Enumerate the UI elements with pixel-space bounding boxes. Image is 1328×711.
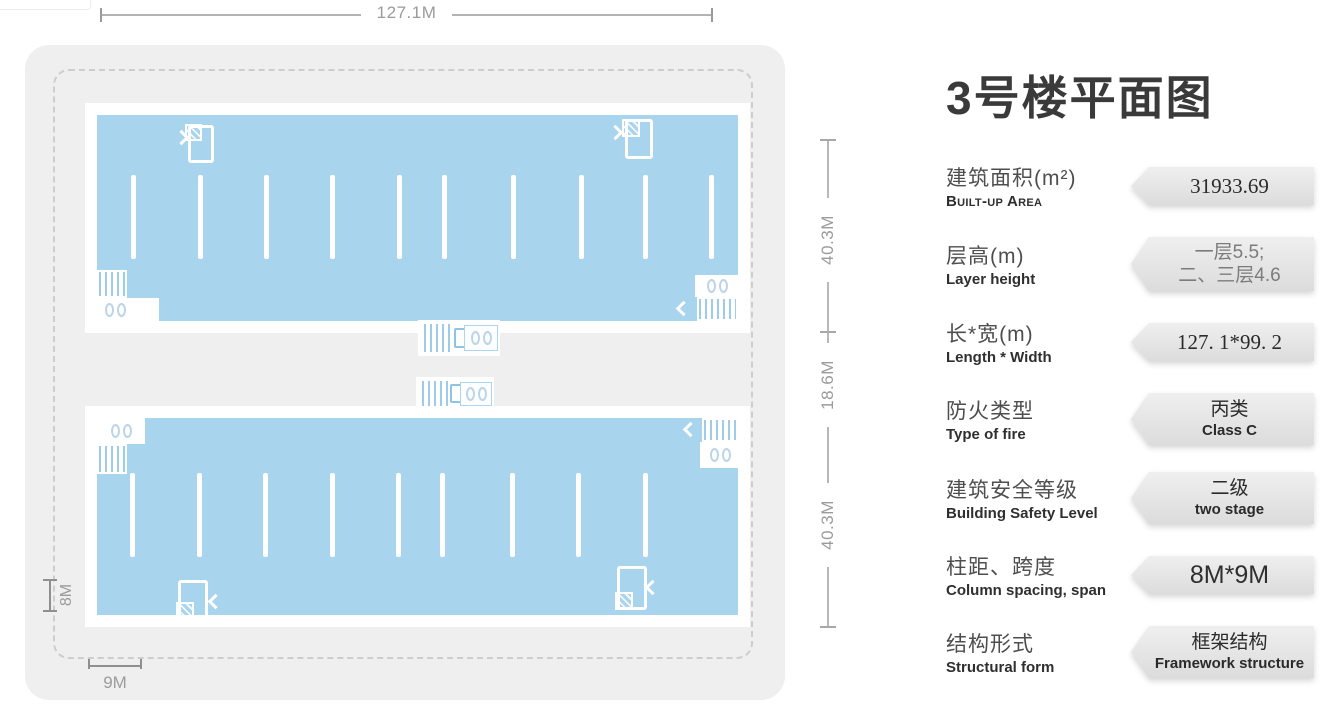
column-grid-line (330, 175, 335, 259)
column-grid-line (396, 473, 401, 557)
upper-building (97, 115, 738, 321)
dimension-tick (140, 659, 142, 669)
stairs-icon (99, 446, 125, 472)
spec-label-en: Type of fire (946, 426, 1131, 443)
right-dimension-label-1: 18.6M (817, 343, 839, 427)
page-title: 3号楼平面图 (946, 62, 1314, 128)
spec-label-en: Layer height (946, 271, 1131, 288)
ribbon-arrow-shape: 8M*9M (1131, 556, 1314, 594)
people-icon (707, 279, 728, 293)
spec-label-structure-form: 结构形式Structural form (946, 628, 1131, 676)
stair-lobby (97, 298, 159, 321)
stairs-icon (422, 381, 448, 407)
column-grid-line (330, 473, 335, 557)
door-icon (188, 125, 214, 163)
chevron-left-icon (683, 422, 699, 438)
dimension-tick (711, 8, 713, 22)
door-hatch-icon (622, 119, 640, 137)
stairs-icon (704, 420, 736, 440)
upper-building-frame (85, 103, 750, 333)
spec-label-zh: 建筑安全等级 (946, 474, 1131, 504)
column-grid-line (131, 175, 136, 259)
spec-value-line: 丙类 (1210, 398, 1248, 421)
stair-lobby (700, 442, 738, 468)
spec-row-layer-height: 层高(m)Layer height一层5.5;二、三层4.6 (946, 237, 1314, 291)
column-grid-line (397, 175, 402, 259)
spec-table: 建筑面积(m²)Built-up Area31933.69层高(m)Layer … (946, 162, 1314, 678)
lower-building (97, 418, 738, 615)
dimension-tick (820, 139, 836, 141)
chevron-left-icon (645, 580, 661, 596)
spec-label-zh: 柱距、跨度 (946, 551, 1131, 581)
top-width-dimension: 127.1M (100, 6, 713, 23)
dimension-tick (88, 659, 90, 669)
column-grid-line (264, 175, 269, 259)
people-icon (105, 303, 126, 317)
column-grid-line (511, 175, 516, 259)
spec-value-banner-length-width: 127. 1*99. 2 (1131, 323, 1314, 361)
spec-label-en: Structural form (946, 659, 1131, 676)
chevron-right-icon (608, 125, 624, 141)
spec-label-zh: 长*宽(m) (946, 318, 1131, 348)
spec-value-line: 二级 (1210, 477, 1248, 500)
chevron-right-icon (129, 273, 145, 289)
spec-label-safety-level: 建筑安全等级Building Safety Level (946, 474, 1131, 522)
column-grid-line (198, 175, 203, 259)
dimension-line (452, 14, 711, 16)
screen-edge-artifact (0, 0, 91, 10)
column-grid-line (197, 473, 202, 557)
restroom-box (460, 382, 492, 406)
central-core-upper (418, 320, 500, 356)
ribbon-arrow-shape: 31933.69 (1131, 167, 1314, 205)
column-grid-line (130, 473, 135, 557)
spec-value-line: 一层5.5; (1195, 241, 1265, 264)
column-grid-line (579, 175, 584, 259)
ribbon-arrow-shape: 丙类Class C (1131, 393, 1314, 445)
spec-label-en: Built-up Area (946, 193, 1131, 210)
spec-value-banner-layer-height: 一层5.5;二、三层4.6 (1131, 237, 1314, 291)
stairs-icon (699, 299, 736, 319)
restroom-box (464, 325, 498, 351)
spec-value-line: two stage (1195, 500, 1264, 520)
spec-row-built-up-area: 建筑面积(m²)Built-up Area31933.69 (946, 162, 1314, 210)
spec-label-en: Length * Width (946, 349, 1131, 366)
stair-lobby (695, 275, 738, 297)
spec-value-banner-built-up-area: 31933.69 (1131, 167, 1314, 205)
spec-value-banner-structure-form: 框架结构Framework structure (1131, 626, 1314, 678)
ribbon-arrow-shape: 框架结构Framework structure (1131, 626, 1314, 678)
ribbon-arrow-shape: 二级two stage (1131, 472, 1314, 524)
spec-label-layer-height: 层高(m)Layer height (946, 240, 1131, 288)
door-hatch-icon (185, 124, 202, 141)
stairs-icon (99, 272, 125, 296)
spec-label-fire-type: 防火类型Type of fire (946, 395, 1131, 443)
bottom-span-dimension-label: 9M (88, 673, 142, 693)
spec-row-column-span: 柱距、跨度Column spacing, span8M*9M (946, 551, 1314, 599)
spec-label-column-span: 柱距、跨度Column spacing, span (946, 551, 1131, 599)
ribbon-arrow-shape: 一层5.5;二、三层4.6 (1131, 237, 1314, 291)
spec-value-banner-column-span: 8M*9M (1131, 556, 1314, 594)
people-icon (111, 424, 132, 438)
floor-plan-infographic: 127.1M (0, 0, 1328, 711)
spec-value-banner-safety-level: 二级two stage (1131, 472, 1314, 524)
people-icon (471, 331, 492, 345)
column-grid-line (440, 473, 445, 557)
spec-value-line: 框架结构 (1191, 631, 1267, 654)
spec-value-line: 127. 1*99. 2 (1177, 331, 1282, 354)
spec-label-zh: 层高(m) (946, 240, 1131, 270)
dimension-line (88, 665, 142, 667)
chevron-right-icon (129, 450, 145, 466)
spec-row-fire-type: 防火类型Type of fire丙类Class C (946, 393, 1314, 445)
lower-building-frame (85, 406, 750, 627)
stair-lobby (97, 418, 145, 444)
spec-value-line: 31933.69 (1190, 175, 1269, 198)
door-icon (178, 580, 208, 620)
spec-label-en: Building Safety Level (946, 505, 1131, 522)
door-icon (625, 119, 653, 159)
people-icon (466, 387, 487, 401)
spec-label-length-width: 长*宽(m)Length * Width (946, 318, 1131, 366)
spec-label-zh: 结构形式 (946, 628, 1131, 658)
spec-label-zh: 防火类型 (946, 395, 1131, 425)
stair-core (697, 297, 738, 321)
door-icon (617, 566, 647, 610)
dimension-tick (43, 610, 57, 612)
top-width-dimension-label: 127.1M (361, 3, 453, 23)
spec-label-en: Column spacing, span (946, 582, 1131, 599)
column-grid-line (263, 473, 268, 557)
dimension-tick (820, 626, 836, 628)
dimension-tick (820, 331, 836, 333)
stair-core (97, 270, 127, 298)
column-grid-line (643, 473, 648, 557)
spec-value-line: 8M*9M (1190, 564, 1269, 587)
people-icon (710, 448, 731, 462)
info-panel: 3号楼平面图 建筑面积(m²)Built-up Area31933.69层高(m… (946, 62, 1314, 678)
stairs-icon (424, 324, 452, 352)
column-grid-line (510, 473, 515, 557)
spec-row-safety-level: 建筑安全等级Building Safety Level二级two stage (946, 472, 1314, 524)
spec-label-zh: 建筑面积(m²) (946, 162, 1131, 192)
right-dimension-label-0: 40.3M (817, 198, 839, 282)
spec-value-line: Class C (1202, 421, 1257, 441)
column-grid-line (643, 175, 648, 259)
chevron-left-icon (208, 594, 224, 610)
spec-row-structure-form: 结构形式Structural form框架结构Framework structu… (946, 626, 1314, 678)
dimension-line (102, 14, 361, 16)
ribbon-arrow-shape: 127. 1*99. 2 (1131, 323, 1314, 361)
column-grid-line (442, 175, 447, 259)
column-grid-line (709, 175, 714, 259)
chevron-left-icon (676, 301, 692, 317)
spec-value-banner-fire-type: 丙类Class C (1131, 393, 1314, 445)
door-hatch-icon (615, 592, 633, 610)
spec-row-length-width: 长*宽(m)Length * Width127. 1*99. 2 (946, 318, 1314, 366)
spec-label-built-up-area: 建筑面积(m²)Built-up Area (946, 162, 1131, 210)
stair-core (97, 444, 127, 474)
site-panel: 8M 9M (25, 45, 785, 700)
right-dimension-label-2: 40.3M (817, 483, 839, 567)
spec-value-line: 二、三层4.6 (1178, 264, 1280, 287)
door-hatch-icon (176, 602, 194, 620)
column-grid-line (576, 473, 581, 557)
dimension-line (49, 579, 51, 611)
spec-value-line: Framework structure (1155, 654, 1304, 674)
left-height-dimension-label: 8M (58, 577, 76, 613)
stair-core (702, 418, 738, 442)
